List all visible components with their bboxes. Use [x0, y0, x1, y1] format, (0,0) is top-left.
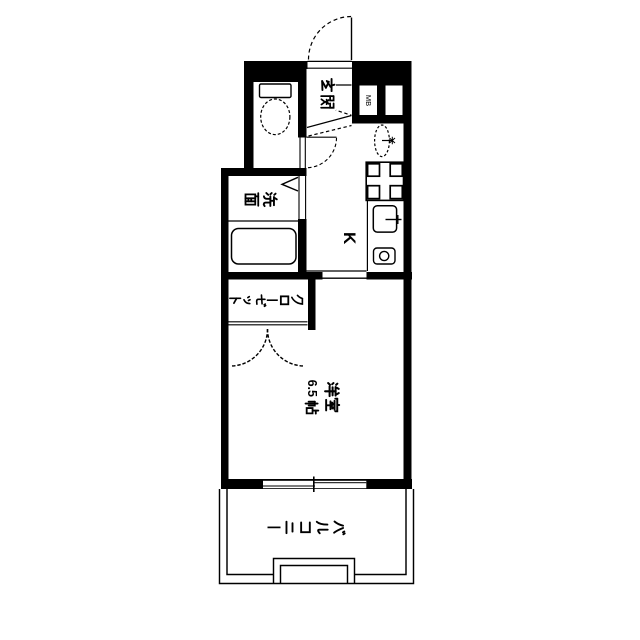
svg-text:6.5: 6.5 [305, 380, 319, 397]
svg-text:MB: MB [364, 95, 373, 106]
svg-text:K: K [340, 232, 359, 245]
